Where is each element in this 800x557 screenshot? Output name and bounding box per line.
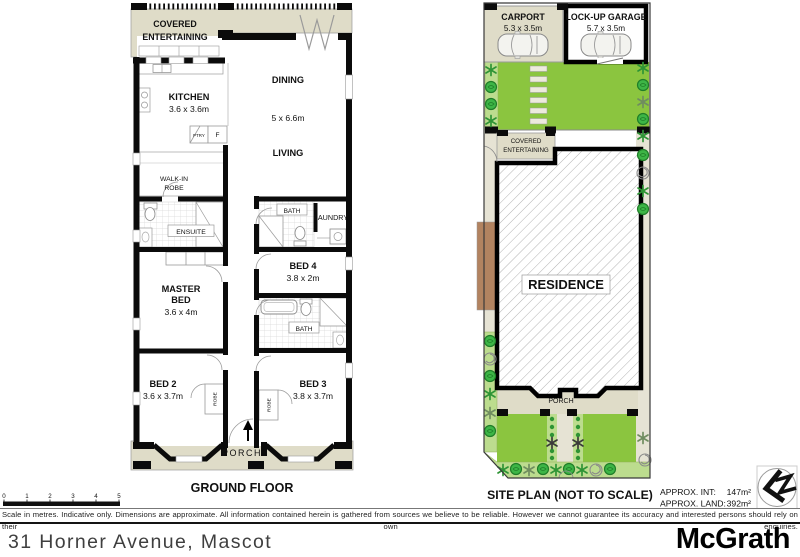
floorplan-canvas: COVERED ENTERTAINING KITCHEN 3.6 x 3.6m … bbox=[0, 0, 800, 509]
scale-bar: 0 1 2 3 4 5 bbox=[2, 493, 121, 506]
ground-floor-title: GROUND FLOOR bbox=[191, 481, 294, 495]
scale-tick-label: 4 bbox=[94, 493, 98, 500]
site-porch-label: PORCH bbox=[548, 398, 573, 405]
ensuite-fixtures bbox=[139, 202, 223, 247]
approx-land-label: APPROX. LAND: bbox=[660, 499, 726, 509]
floorplan-page: COVERED ENTERTAINING KITCHEN 3.6 x 3.6m … bbox=[0, 0, 800, 557]
walk-in-robe-label-1: WALK-IN bbox=[160, 176, 188, 183]
master-bed-label-1: MASTER bbox=[162, 284, 201, 294]
front-lawn-right bbox=[583, 414, 636, 462]
laundry-tub-icon bbox=[330, 229, 346, 244]
fridge-label: F bbox=[216, 132, 220, 139]
bath-top-label: BATH bbox=[284, 208, 301, 215]
front-lawn-left bbox=[497, 414, 547, 462]
scale-tick-label: 0 bbox=[2, 493, 6, 500]
car-icon bbox=[581, 32, 631, 59]
covered-entertaining-label-1: COVERED bbox=[153, 19, 197, 29]
timber-deck-strip bbox=[477, 222, 497, 310]
bed3-dims: 3.8 x 3.7m bbox=[293, 391, 333, 401]
master-bed-dims: 3.6 x 4m bbox=[165, 307, 198, 317]
ground-floor-plan: COVERED ENTERTAINING KITCHEN 3.6 x 3.6m … bbox=[131, 3, 353, 495]
kitchen-dims: 3.6 x 3.6m bbox=[169, 104, 209, 114]
site-covered-entertaining bbox=[497, 133, 555, 159]
area-summary: APPROX. INT: 147m² APPROX. LAND: 392m² bbox=[660, 487, 751, 509]
robe-left-label: ROBE bbox=[213, 392, 219, 406]
ensuite-label: ENSUITE bbox=[176, 229, 206, 236]
site-covered-entertaining-label-2: ENTERTAINING bbox=[503, 147, 549, 154]
main-bath-fixtures bbox=[259, 298, 347, 348]
bathtub-icon bbox=[261, 300, 297, 314]
residence-label: RESIDENCE bbox=[528, 277, 604, 292]
scale-tick-label: 3 bbox=[71, 493, 75, 500]
approx-int-label: APPROX. INT: bbox=[660, 487, 716, 497]
mcgrath-logo: McGrath bbox=[676, 525, 790, 554]
living-label: LIVING bbox=[273, 148, 304, 158]
garage-label: LOCK-UP GARAGE bbox=[566, 12, 647, 22]
backyard-lawn bbox=[485, 62, 649, 130]
robe-right-label: ROBE bbox=[267, 398, 273, 412]
dining-label: DINING bbox=[272, 75, 304, 85]
property-address: 31 Horner Avenue, Mascot bbox=[8, 531, 272, 554]
toilet-icon bbox=[301, 303, 311, 316]
footer: 31 Horner Avenue, Mascot McGrath bbox=[0, 523, 800, 557]
bed4-label: BED 4 bbox=[289, 261, 317, 271]
approx-land-value: 392m² bbox=[727, 499, 751, 509]
open-plan-dims: 5 x 6.6m bbox=[272, 113, 305, 123]
scale-tick-label: 2 bbox=[48, 493, 52, 500]
residence-footprint bbox=[497, 149, 641, 396]
bath-mid-label: BATH bbox=[296, 326, 313, 333]
pantry-label: PTRY bbox=[193, 133, 205, 138]
bed3-label: BED 3 bbox=[299, 379, 326, 389]
kitchen-label: KITCHEN bbox=[169, 92, 210, 102]
walk-in-robe-label-2: ROBE bbox=[164, 185, 184, 192]
scale-tick-label: 5 bbox=[117, 493, 121, 500]
porch-label: PORCH bbox=[222, 448, 262, 458]
bed4-dims: 3.8 x 2m bbox=[287, 273, 320, 283]
site-plan-title: SITE PLAN (NOT TO SCALE) bbox=[487, 488, 653, 502]
carport-dims: 5.3 x 3.5m bbox=[504, 24, 542, 33]
site-plan: CARPORT 5.3 x 3.5m LOCK-UP GARAGE 5.7 x … bbox=[477, 3, 653, 502]
carport-label: CARPORT bbox=[501, 12, 545, 22]
bed2-dims: 3.6 x 3.7m bbox=[143, 391, 183, 401]
approx-int-value: 147m² bbox=[727, 487, 751, 497]
site-covered-entertaining-label-1: COVERED bbox=[511, 138, 542, 145]
stove-icon bbox=[139, 88, 150, 112]
covered-entertaining-label-2: ENTERTAINING bbox=[142, 32, 207, 42]
laundry-label: LAUNDRY bbox=[314, 213, 348, 222]
lz-logo-mark bbox=[757, 466, 797, 509]
car-icon bbox=[498, 32, 548, 59]
toilet-icon bbox=[145, 208, 155, 221]
disclaimer-text: Scale in metres. Indicative only. Dimens… bbox=[0, 508, 800, 524]
master-bed-label-2: BED bbox=[171, 295, 191, 305]
scale-tick-label: 1 bbox=[25, 493, 29, 500]
toilet-icon bbox=[295, 227, 305, 240]
bed2-label: BED 2 bbox=[149, 379, 176, 389]
outdoor-bench bbox=[139, 46, 219, 56]
garage-dims: 5.7 x 3.5m bbox=[587, 24, 625, 33]
